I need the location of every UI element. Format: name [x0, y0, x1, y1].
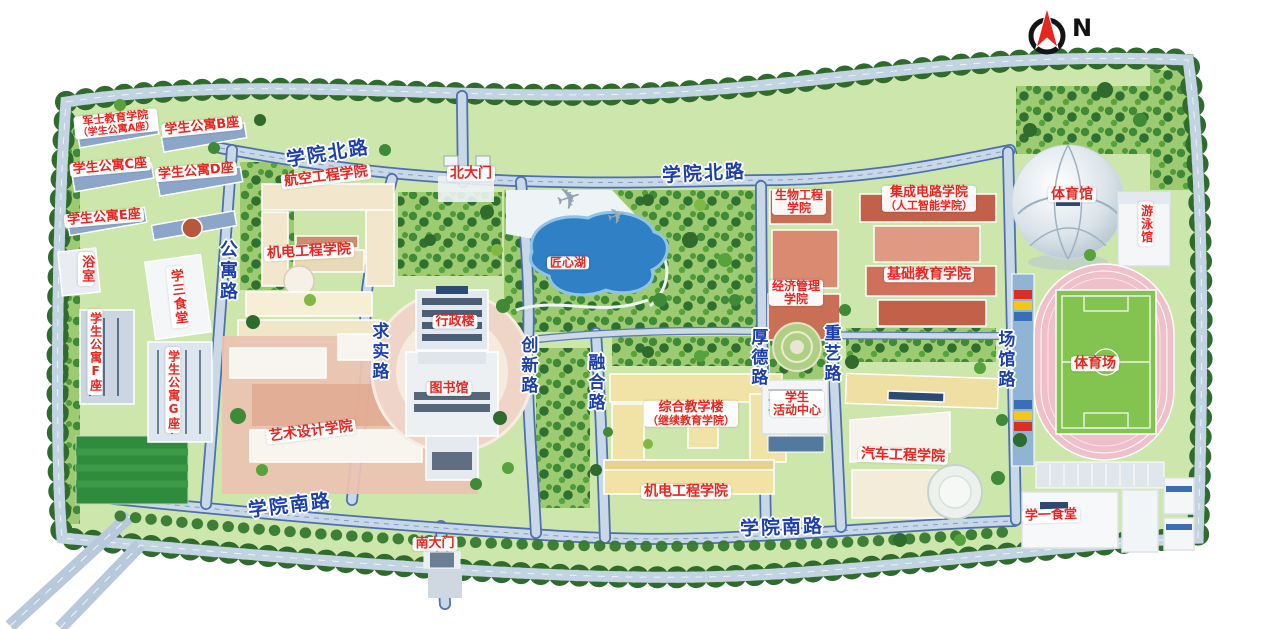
- building-label-stadium: 体育场: [1071, 356, 1119, 371]
- road-label-changguan: 场馆路: [995, 330, 1014, 390]
- comprehensive-line2: （继续教育学院）: [647, 415, 735, 427]
- compass-north-label: N: [1072, 15, 1092, 41]
- road-label-ronghe: 融合路: [585, 353, 604, 413]
- building-label-basic-edu: 基础教育学院: [884, 267, 974, 282]
- southwest-field: [76, 436, 188, 504]
- road-label-south-2: 学院南路: [740, 516, 825, 540]
- bio-line2: 学院: [775, 202, 823, 215]
- student-center-line2: 活动中心: [773, 404, 821, 417]
- map-graphics: ✈ ✈: [0, 0, 1266, 629]
- building-label-bio: 生物工程 学院: [772, 189, 826, 215]
- north-gate-label: 北大门: [447, 166, 495, 181]
- north-arrow: [1031, 8, 1063, 52]
- building-label-mech-south: 机电工程学院: [641, 484, 731, 499]
- lake-water: [530, 212, 667, 295]
- building-label-library: 图书馆: [426, 382, 471, 396]
- south-gate-structure: [424, 552, 462, 598]
- building-label-ic: 集成电路学院 （人工智能学院）: [882, 186, 976, 212]
- building-label-dorm-g: 学生公寓G座: [165, 347, 180, 433]
- parking-lot: [1036, 462, 1164, 488]
- teaching-buildings: [604, 374, 786, 494]
- road-label-zhongyi: 重艺路: [821, 324, 840, 384]
- ic-line2: （人工智能学院）: [885, 200, 973, 212]
- building-label-comprehensive: 综合教学楼 （继续教育学院）: [644, 401, 738, 427]
- lake-label: 匠心湖: [547, 256, 589, 269]
- south-gate-label: 南大门: [412, 537, 457, 551]
- building-label-bathhouse: 浴室: [78, 252, 94, 286]
- building-label-gym: 体育馆: [1048, 187, 1096, 202]
- building-label-dorm-f: 学生公寓F座: [87, 309, 102, 395]
- road-label-houde: 厚德路: [748, 328, 767, 388]
- circular-plaza: [773, 323, 821, 371]
- road-label-north-2: 学院北路: [662, 161, 747, 186]
- road-label-chuangxin: 创新路: [518, 336, 537, 396]
- econ-line2: 学院: [772, 293, 820, 306]
- building-label-student-center: 学生 活动中心: [770, 391, 824, 417]
- building-label-canteen1: 学一食堂: [1022, 508, 1080, 524]
- road-label-gongyu: 公寓路: [217, 240, 237, 303]
- building-label-admin: 行政楼: [432, 315, 477, 329]
- road-label-qiushi: 求实路: [369, 322, 388, 382]
- ic-basic-buildings: [860, 194, 996, 326]
- building-label-swim: 游泳馆: [1138, 202, 1153, 247]
- building-label-econ: 经济管理 学院: [769, 280, 823, 306]
- campus-map: ✈ ✈: [0, 0, 1266, 629]
